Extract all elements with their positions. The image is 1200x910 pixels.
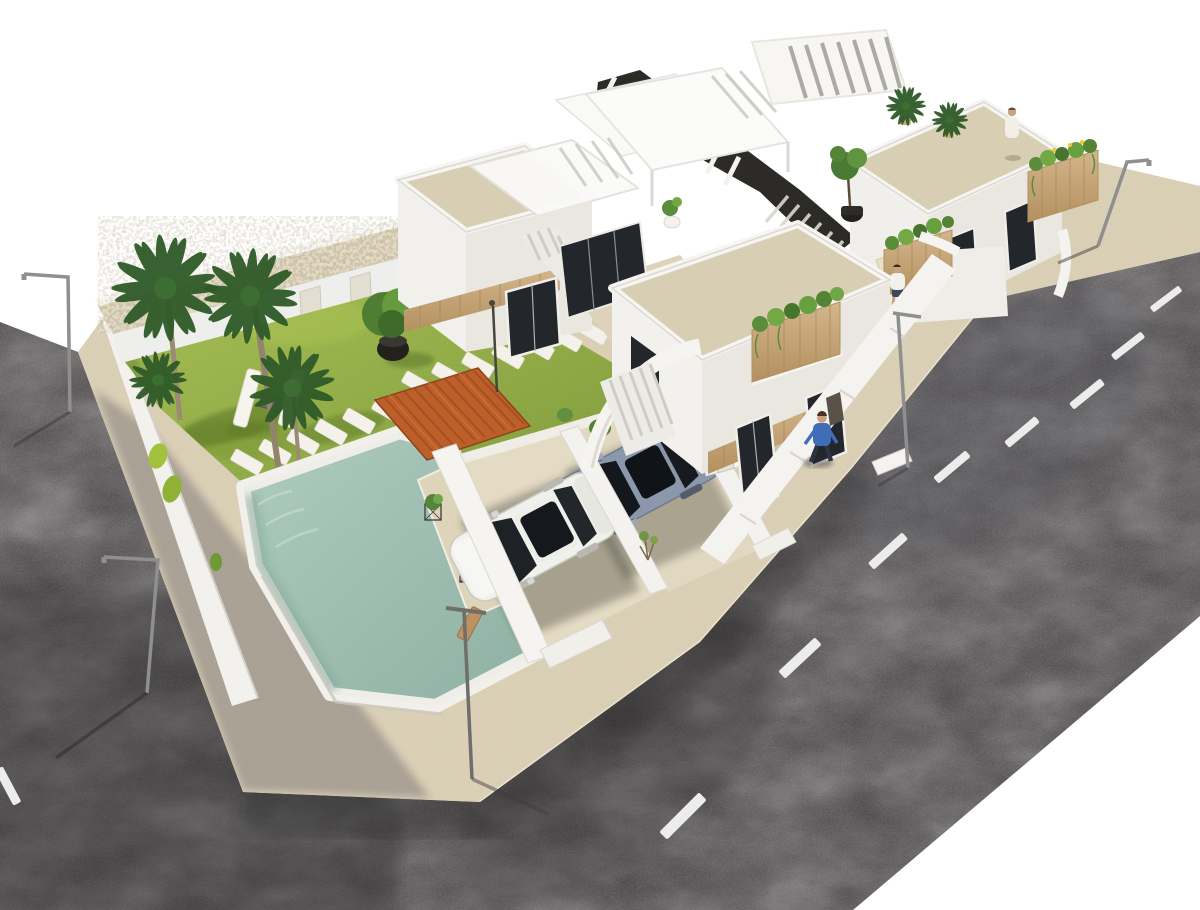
green-shrub bbox=[210, 553, 222, 571]
pergola-top bbox=[752, 30, 906, 104]
architectural-render bbox=[0, 0, 1200, 910]
glass-door bbox=[506, 278, 560, 358]
green-shrub bbox=[557, 408, 573, 422]
